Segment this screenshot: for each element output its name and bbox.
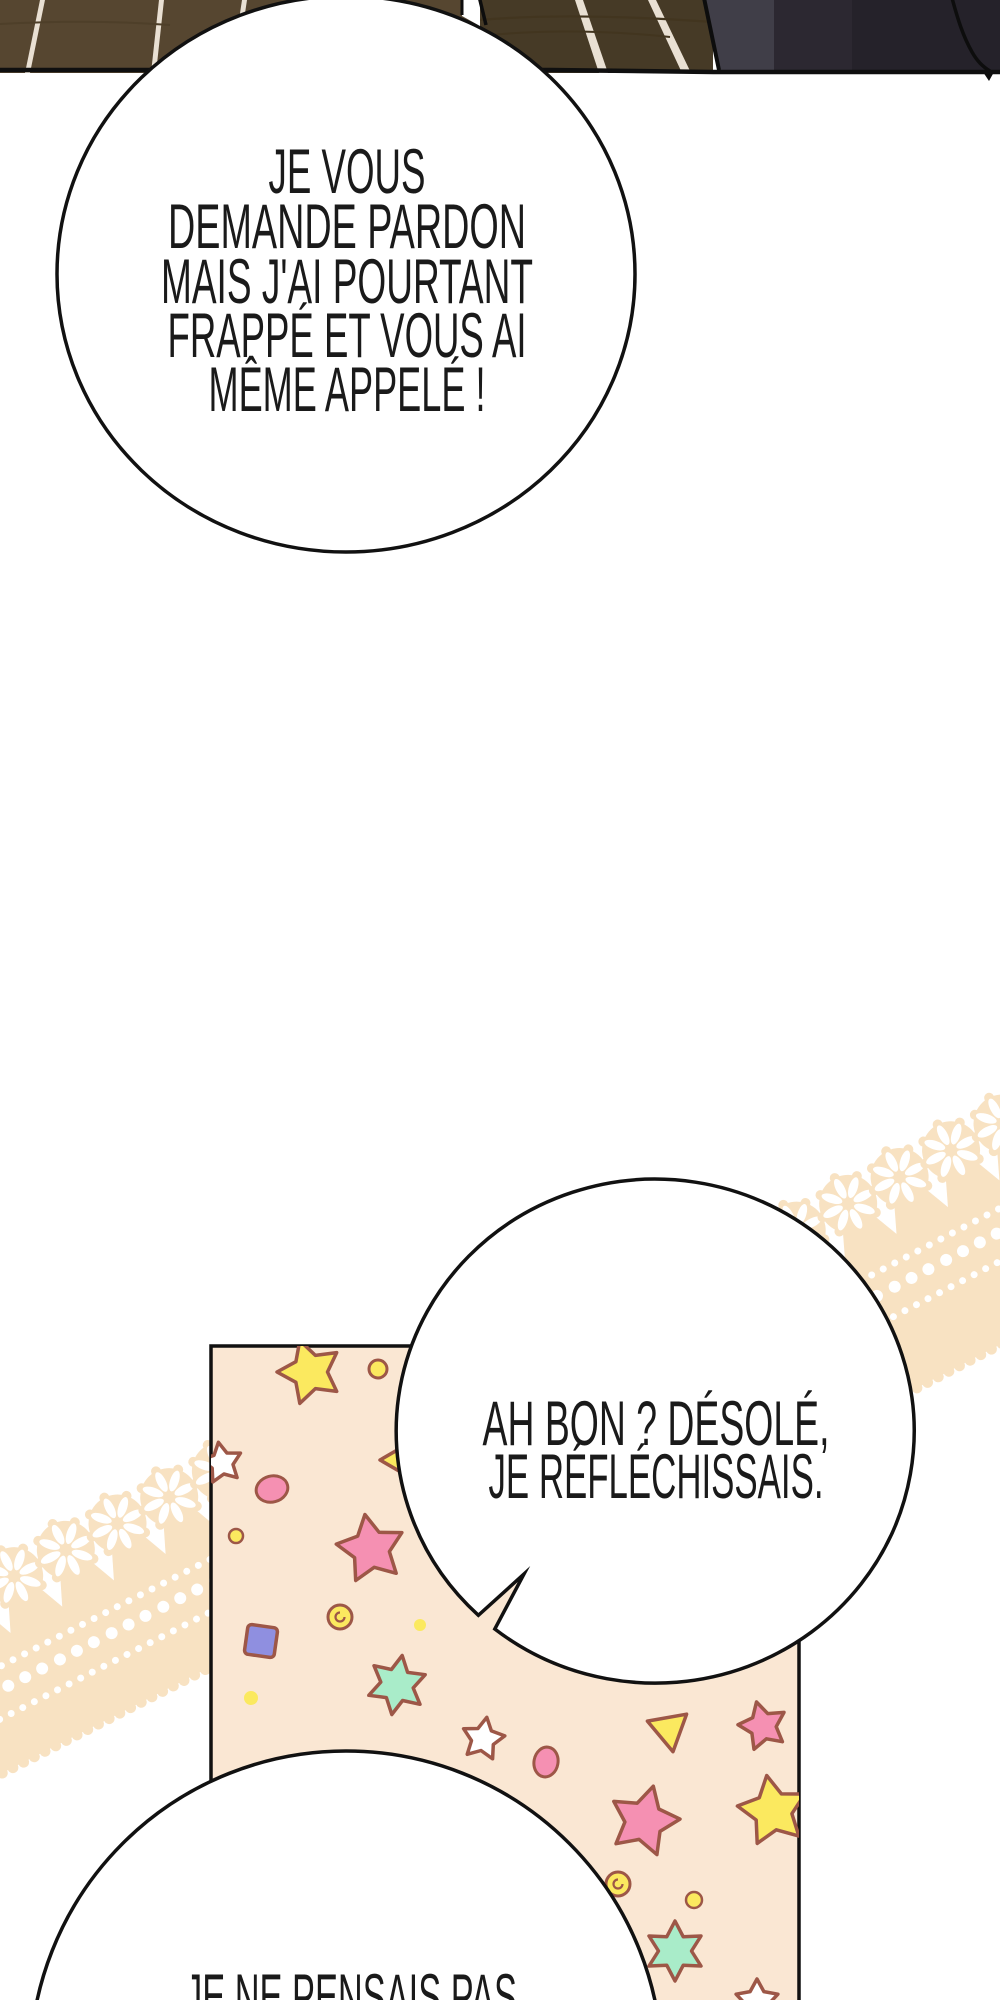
svg-text:JE NE PENSAIS PAS: JE NE PENSAIS PAS [185,1962,517,2000]
svg-text:MÊME APPELÉ !: MÊME APPELÉ ! [209,355,486,425]
svg-text:JE RÉFLÉCHISSAIS.: JE RÉFLÉCHISSAIS. [489,1442,824,1512]
